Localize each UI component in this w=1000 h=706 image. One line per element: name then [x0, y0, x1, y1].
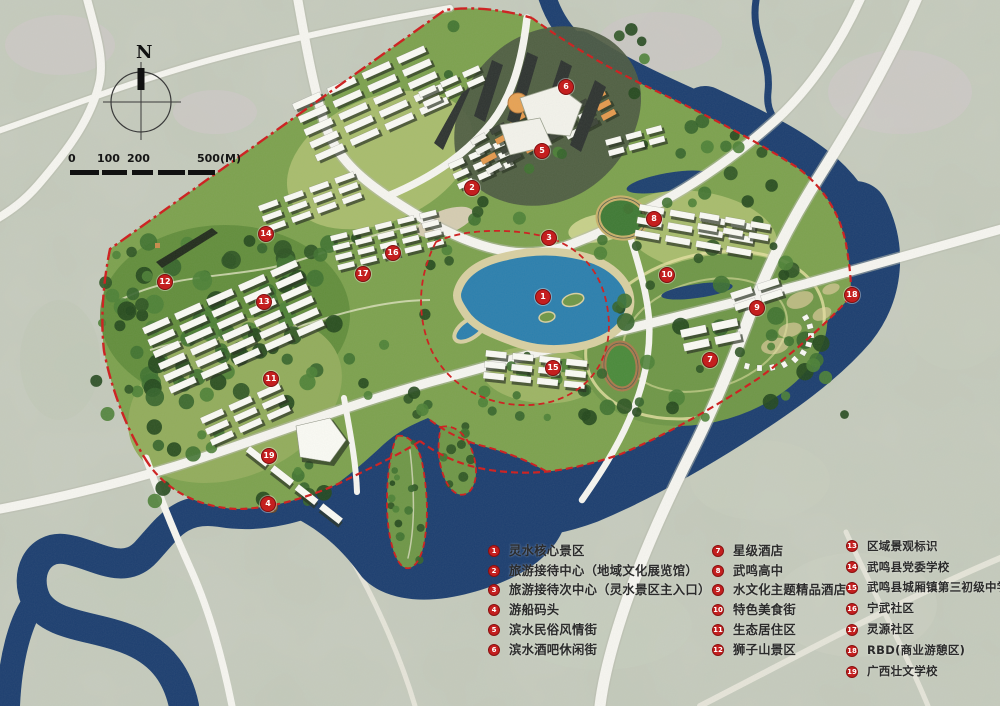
legend-item: 18RBD(商业游憩区): [846, 640, 1000, 661]
legend-item: 13区域景观标识: [846, 536, 1000, 557]
legend-marker-dot: 12: [712, 644, 724, 656]
legend-item: 17灵源社区: [846, 620, 1000, 641]
legend-item-label: 广西壮文学校: [867, 666, 938, 678]
legend-item-label: 灵水核心景区: [509, 545, 585, 557]
legend-column: 13区域景观标识14武鸣县党委学校15武鸣县城厢镇第三初级中学16宁武社区17灵…: [846, 536, 1000, 682]
legend-item-label: 武鸣高中: [733, 565, 783, 577]
legend-marker-dot: 11: [712, 624, 724, 636]
legend-marker-dot: 13: [846, 540, 858, 552]
legend-item-label: 水文化主题精品酒店: [733, 584, 846, 596]
legend-marker-dot: 9: [712, 584, 724, 596]
legend-item-label: 宁武社区: [867, 603, 914, 615]
legend: 1灵水核心景区2旅游接待中心（地域文化展览馆）3旅游接待次中心（灵水景区主入口）…: [0, 0, 1000, 706]
legend-item: 7星级酒店: [712, 541, 846, 561]
legend-item-label: 滨水民俗风情街: [509, 624, 597, 636]
legend-marker-dot: 3: [488, 584, 500, 596]
legend-column: 1灵水核心景区2旅游接待中心（地域文化展览馆）3旅游接待次中心（灵水景区主入口）…: [488, 541, 711, 660]
legend-item: 19广西壮文学校: [846, 661, 1000, 682]
legend-item: 16宁武社区: [846, 599, 1000, 620]
legend-marker-dot: 10: [712, 604, 724, 616]
legend-item-label: 生态居住区: [733, 624, 796, 636]
legend-marker-dot: 18: [846, 645, 858, 657]
legend-item: 3旅游接待次中心（灵水景区主入口）: [488, 581, 711, 601]
legend-item-label: RBD(商业游憩区): [867, 645, 965, 657]
legend-item-label: 区域景观标识: [867, 541, 938, 553]
legend-item: 1灵水核心景区: [488, 541, 711, 561]
legend-item: 6滨水酒吧休闲街: [488, 640, 711, 660]
legend-item: 4游船码头: [488, 600, 711, 620]
legend-item-label: 武鸣县党委学校: [867, 562, 950, 574]
legend-item-label: 特色美食街: [733, 604, 796, 616]
legend-item: 5滨水民俗风情街: [488, 620, 711, 640]
legend-marker-dot: 4: [488, 604, 500, 616]
legend-item: 15武鸣县城厢镇第三初级中学: [846, 578, 1000, 599]
legend-marker-dot: 2: [488, 565, 500, 577]
legend-item-label: 滨水酒吧休闲街: [509, 644, 597, 656]
legend-item-label: 星级酒店: [733, 545, 783, 557]
legend-column: 7星级酒店8武鸣高中9水文化主题精品酒店10特色美食街11生态居住区12狮子山景…: [712, 541, 846, 660]
legend-item-label: 狮子山景区: [733, 644, 796, 656]
legend-item-label: 旅游接待次中心（灵水景区主入口）: [509, 584, 711, 596]
legend-item: 12狮子山景区: [712, 640, 846, 660]
legend-marker-dot: 17: [846, 624, 858, 636]
legend-item-label: 游船码头: [509, 604, 559, 616]
legend-item: 10特色美食街: [712, 600, 846, 620]
master-plan-map: N 0 100 200 500 (M) 12345678910111213141…: [0, 0, 1000, 706]
legend-item: 11生态居住区: [712, 620, 846, 640]
legend-marker-dot: 14: [846, 561, 858, 573]
legend-marker-dot: 8: [712, 565, 724, 577]
legend-item: 2旅游接待中心（地域文化展览馆）: [488, 561, 711, 581]
legend-item-label: 灵源社区: [867, 624, 914, 636]
legend-item: 9水文化主题精品酒店: [712, 581, 846, 601]
legend-marker-dot: 15: [846, 582, 858, 594]
legend-marker-dot: 16: [846, 603, 858, 615]
legend-item: 14武鸣县党委学校: [846, 557, 1000, 578]
legend-marker-dot: 7: [712, 545, 724, 557]
legend-marker-dot: 5: [488, 624, 500, 636]
legend-item: 8武鸣高中: [712, 561, 846, 581]
legend-marker-dot: 6: [488, 644, 500, 656]
legend-marker-dot: 19: [846, 666, 858, 678]
legend-item-label: 旅游接待中心（地域文化展览馆）: [509, 565, 698, 577]
legend-marker-dot: 1: [488, 545, 500, 557]
legend-item-label: 武鸣县城厢镇第三初级中学: [867, 582, 1000, 594]
